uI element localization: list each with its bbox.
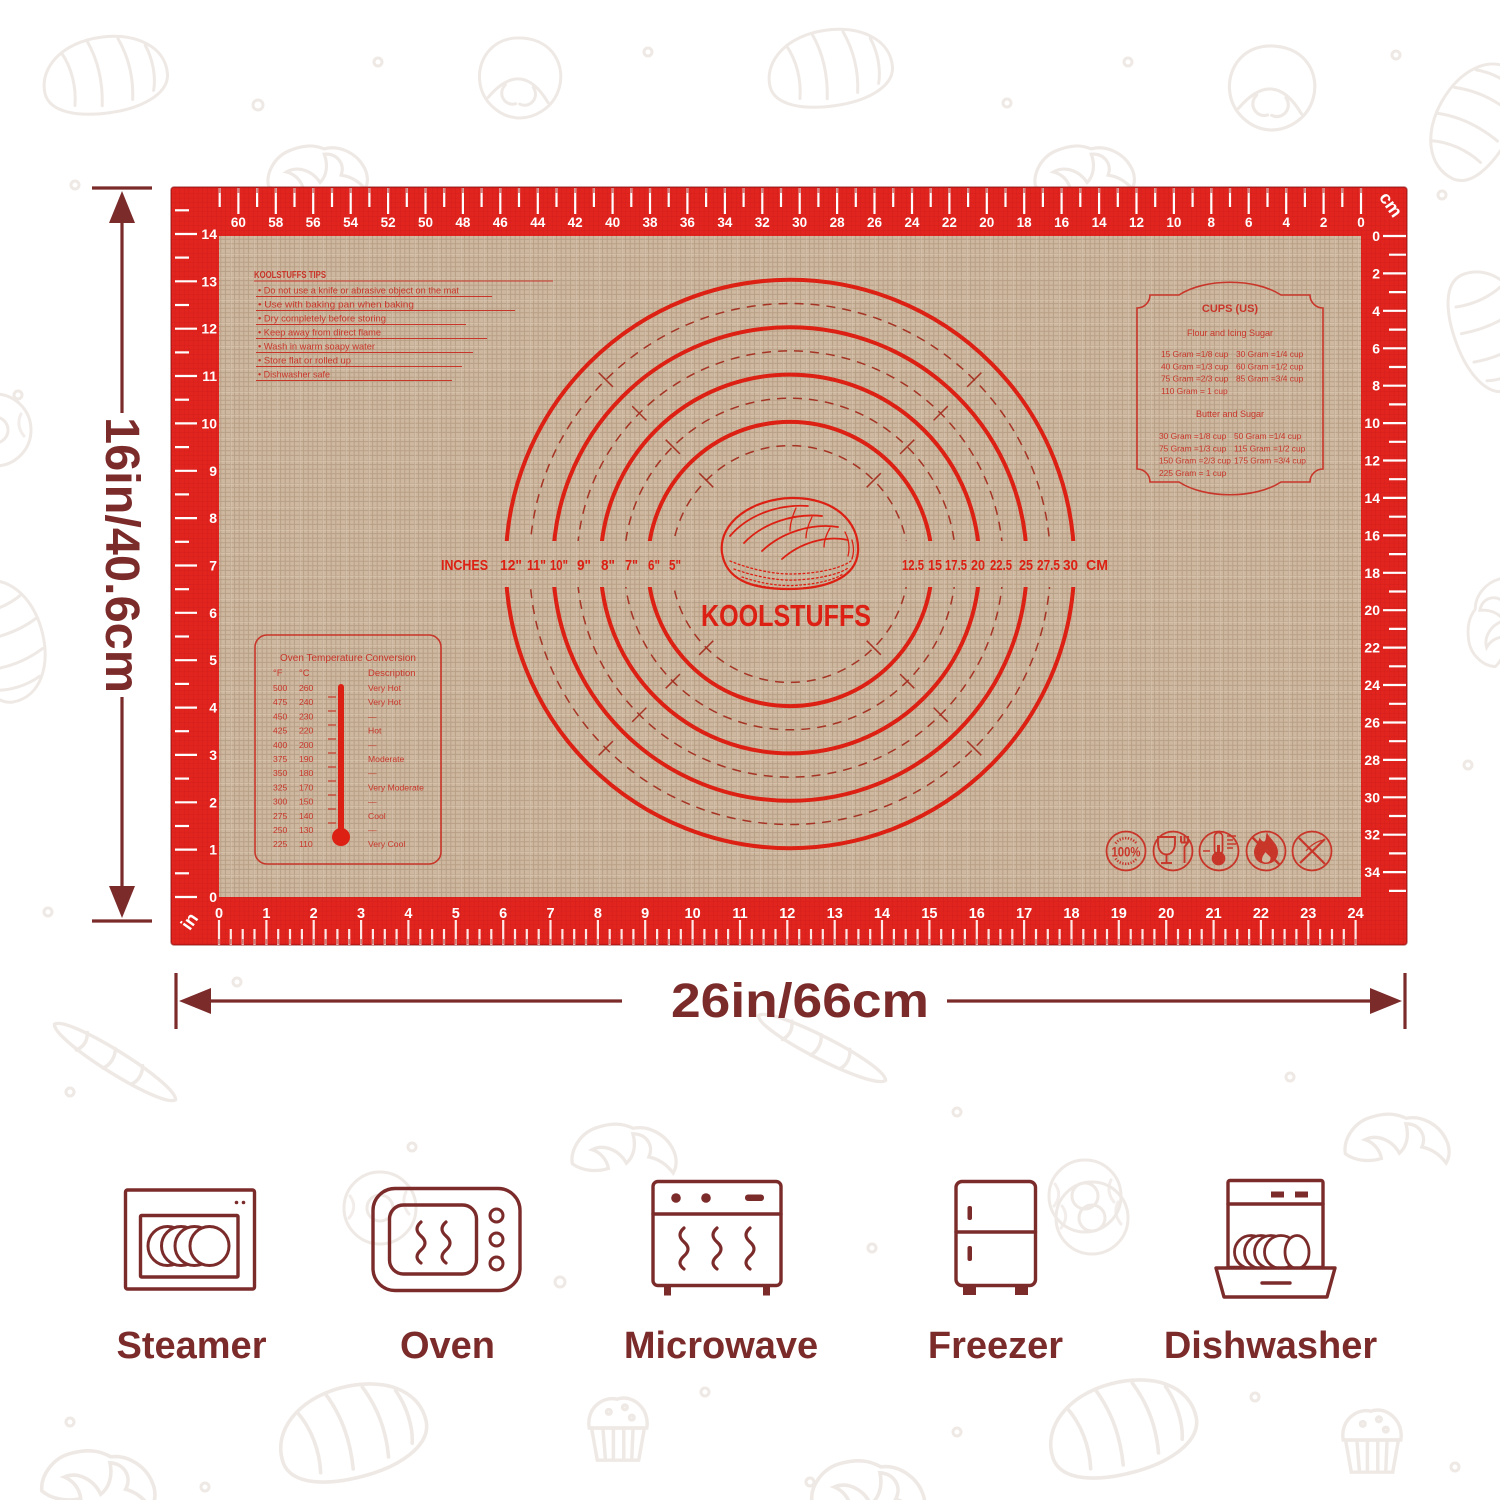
svg-text:Butter and Sugar: Butter and Sugar: [1196, 409, 1264, 419]
svg-text:44: 44: [530, 215, 546, 230]
svg-text:15 Gram =1/8 cup: 15 Gram =1/8 cup: [1161, 349, 1229, 359]
svg-text:6: 6: [1245, 215, 1253, 230]
svg-text:22: 22: [942, 215, 957, 230]
svg-text:30: 30: [1364, 789, 1380, 805]
svg-text:9": 9": [577, 557, 591, 574]
svg-text:12: 12: [1364, 453, 1380, 469]
svg-text:20: 20: [971, 557, 985, 574]
svg-text:26in/66cm: 26in/66cm: [671, 975, 929, 1028]
svg-text:100%: 100%: [1112, 844, 1141, 860]
svg-text:Very Moderate: Very Moderate: [368, 782, 424, 792]
svg-text:INCHES: INCHES: [441, 557, 488, 574]
svg-text:0: 0: [1372, 228, 1380, 244]
svg-text:30 Gram =1/8 cup: 30 Gram =1/8 cup: [1159, 431, 1227, 441]
svg-text:40: 40: [605, 215, 620, 230]
svg-text:10: 10: [1166, 215, 1181, 230]
svg-text:450: 450: [273, 711, 288, 721]
svg-text:10": 10": [550, 557, 568, 574]
svg-text:17: 17: [1016, 906, 1032, 922]
svg-text:0: 0: [209, 889, 217, 905]
svg-text:48: 48: [455, 215, 471, 230]
svg-text:350: 350: [273, 768, 288, 778]
svg-text:6: 6: [209, 605, 217, 621]
svg-text:50 Gram =1/4 cup: 50 Gram =1/4 cup: [1234, 431, 1302, 441]
svg-text:16: 16: [1364, 527, 1380, 543]
svg-text:8: 8: [1372, 378, 1380, 394]
svg-text:36: 36: [680, 215, 696, 230]
svg-text:Oven: Oven: [400, 1325, 495, 1367]
svg-text:22.5: 22.5: [990, 557, 1012, 574]
svg-text:• Dishwasher safe: • Dishwasher safe: [258, 370, 330, 380]
svg-text:Very Cool: Very Cool: [368, 839, 405, 849]
svg-text:6: 6: [1372, 340, 1380, 356]
svg-text:30 Gram =1/4 cup: 30 Gram =1/4 cup: [1236, 349, 1304, 359]
svg-text:26: 26: [1364, 715, 1380, 731]
svg-text:7: 7: [209, 558, 217, 574]
svg-text:1: 1: [262, 906, 270, 922]
svg-text:25: 25: [1019, 557, 1033, 574]
svg-text:34: 34: [717, 215, 733, 230]
svg-text:22: 22: [1364, 640, 1380, 656]
svg-text:9: 9: [209, 463, 217, 479]
svg-text:10: 10: [201, 415, 217, 431]
svg-text:500: 500: [273, 683, 288, 693]
svg-text:24: 24: [1348, 906, 1364, 922]
svg-text:14: 14: [1364, 490, 1380, 506]
svg-text:• Keep away from direct flame: • Keep away from direct flame: [258, 328, 381, 338]
svg-text:225 Gram = 1 cup: 225 Gram = 1 cup: [1159, 468, 1227, 478]
svg-text:18: 18: [1017, 215, 1033, 230]
svg-text:2: 2: [310, 906, 318, 922]
svg-text:13: 13: [201, 273, 217, 289]
svg-text:17.5: 17.5: [945, 557, 967, 574]
svg-text:16: 16: [1054, 215, 1070, 230]
svg-text:220: 220: [299, 726, 314, 736]
svg-text:15: 15: [928, 557, 942, 574]
svg-text:225: 225: [273, 839, 288, 849]
svg-text:150: 150: [299, 797, 314, 807]
svg-text:3: 3: [357, 906, 365, 922]
svg-text:19: 19: [1111, 906, 1127, 922]
svg-text:14: 14: [1092, 215, 1108, 230]
svg-text:5: 5: [209, 652, 217, 668]
svg-text:475: 475: [273, 697, 288, 707]
svg-text:75 Gram =1/3 cup: 75 Gram =1/3 cup: [1159, 443, 1227, 453]
svg-text:5: 5: [452, 906, 460, 922]
svg-text:14: 14: [874, 906, 890, 922]
svg-text:30: 30: [1063, 557, 1078, 574]
svg-text:240: 240: [299, 697, 314, 707]
svg-text:60 Gram =1/2 cup: 60 Gram =1/2 cup: [1236, 361, 1304, 371]
svg-text:3: 3: [209, 747, 217, 763]
svg-text:Dishwasher: Dishwasher: [1164, 1325, 1378, 1367]
svg-text:Steamer: Steamer: [117, 1325, 267, 1367]
svg-text:18: 18: [1063, 906, 1079, 922]
svg-text:325: 325: [273, 782, 288, 792]
svg-text:4: 4: [1372, 303, 1380, 319]
svg-text:7: 7: [546, 906, 554, 922]
svg-text:300: 300: [273, 797, 288, 807]
svg-text:200: 200: [299, 740, 314, 750]
svg-text:130: 130: [299, 825, 314, 835]
svg-text:4: 4: [1282, 215, 1290, 230]
svg-text:2: 2: [209, 794, 217, 810]
svg-text:9: 9: [641, 906, 649, 922]
svg-text:Flour and Icing Sugar: Flour and Icing Sugar: [1187, 328, 1273, 338]
svg-text:10: 10: [685, 906, 701, 922]
svg-text:20: 20: [1364, 602, 1380, 618]
svg-text:50: 50: [418, 215, 433, 230]
svg-text:—: —: [368, 825, 377, 835]
svg-text:8: 8: [594, 906, 602, 922]
svg-text:170: 170: [299, 782, 314, 792]
svg-text:150 Gram =2/3 cup: 150 Gram =2/3 cup: [1159, 456, 1231, 466]
svg-text:11: 11: [732, 906, 747, 922]
svg-text:—: —: [368, 768, 377, 778]
svg-text:• Use with baking pan when bak: • Use with baking pan when baking: [258, 300, 414, 310]
svg-text:230: 230: [299, 711, 314, 721]
svg-text:190: 190: [299, 754, 314, 764]
svg-text:28: 28: [830, 215, 846, 230]
svg-text:110 Gram = 1 cup: 110 Gram = 1 cup: [1161, 386, 1228, 396]
svg-text:6: 6: [499, 906, 507, 922]
svg-text:16in/40.6cm: 16in/40.6cm: [95, 417, 148, 693]
svg-text:58: 58: [268, 215, 284, 230]
svg-text:12: 12: [1129, 215, 1144, 230]
svg-text:24: 24: [904, 215, 920, 230]
svg-text:• Wash in warm soapy water: • Wash in warm soapy water: [258, 342, 375, 352]
svg-text:CUPS (US): CUPS (US): [1202, 303, 1259, 315]
svg-text:6": 6": [648, 557, 660, 574]
svg-text:400: 400: [273, 740, 288, 750]
svg-text:Description: Description: [368, 668, 416, 679]
svg-text:15: 15: [921, 906, 937, 922]
svg-text:16: 16: [969, 906, 985, 922]
svg-text:4: 4: [209, 700, 217, 716]
svg-text:Hot: Hot: [368, 726, 382, 736]
svg-text:18: 18: [1364, 565, 1380, 581]
svg-text:• Store flat or rolled up: • Store flat or rolled up: [258, 356, 351, 366]
svg-text:Microwave: Microwave: [624, 1325, 818, 1367]
svg-text:22: 22: [1253, 906, 1269, 922]
svg-text:260: 260: [299, 683, 314, 693]
svg-text:60: 60: [231, 215, 246, 230]
svg-text:8: 8: [1208, 215, 1216, 230]
svg-text:12": 12": [500, 557, 522, 574]
svg-text:13: 13: [827, 906, 843, 922]
svg-text:32: 32: [1364, 827, 1380, 843]
svg-text:Moderate: Moderate: [368, 754, 405, 764]
svg-text:KOOLSTUFFS TIPS: KOOLSTUFFS TIPS: [254, 270, 326, 281]
svg-text:38: 38: [642, 215, 658, 230]
svg-text:54: 54: [343, 215, 359, 230]
svg-text:12.5: 12.5: [902, 557, 924, 574]
svg-text:34: 34: [1364, 864, 1380, 880]
svg-text:30: 30: [792, 215, 807, 230]
svg-text:KOOLSTUFFS: KOOLSTUFFS: [701, 598, 871, 633]
svg-text:140: 140: [299, 811, 314, 821]
svg-text:26: 26: [867, 215, 883, 230]
svg-text:°F: °F: [273, 668, 283, 679]
svg-text:56: 56: [306, 215, 322, 230]
svg-text:375: 375: [273, 754, 288, 764]
svg-text:11: 11: [202, 368, 217, 384]
svg-text:85 Gram =3/4 cup: 85 Gram =3/4 cup: [1236, 374, 1304, 384]
svg-text:32: 32: [755, 215, 770, 230]
svg-text:14: 14: [201, 226, 217, 242]
svg-text:24: 24: [1364, 677, 1380, 693]
svg-text:21: 21: [1206, 906, 1222, 922]
svg-text:Very Hot: Very Hot: [368, 683, 402, 693]
svg-text:Oven Temperature Conversion: Oven Temperature Conversion: [280, 653, 416, 664]
svg-text:12: 12: [201, 321, 217, 337]
svg-text:• Dry completely before storin: • Dry completely before storing: [258, 314, 386, 324]
svg-text:46: 46: [493, 215, 509, 230]
svg-text:20: 20: [979, 215, 994, 230]
svg-text:27.5: 27.5: [1037, 557, 1060, 574]
svg-text:0: 0: [1357, 215, 1365, 230]
svg-text:20: 20: [1158, 906, 1174, 922]
svg-text:11": 11": [527, 557, 546, 574]
svg-text:40 Gram =1/3 cup: 40 Gram =1/3 cup: [1161, 361, 1229, 371]
svg-text:—: —: [368, 797, 377, 807]
svg-text:10: 10: [1364, 415, 1380, 431]
svg-text:180: 180: [299, 768, 314, 778]
svg-text:Cool: Cool: [368, 811, 386, 821]
svg-text:4: 4: [404, 906, 412, 922]
svg-text:7": 7": [625, 557, 638, 574]
svg-text:0: 0: [215, 906, 223, 922]
svg-text:425: 425: [273, 726, 288, 736]
svg-text:1: 1: [209, 842, 217, 858]
svg-text:110: 110: [299, 839, 313, 849]
svg-text:75 Gram =2/3 cup: 75 Gram =2/3 cup: [1161, 374, 1229, 384]
svg-text:—: —: [368, 711, 377, 721]
svg-text:°C: °C: [299, 668, 310, 679]
svg-text:275: 275: [273, 811, 288, 821]
svg-text:2: 2: [1372, 265, 1380, 281]
svg-text:52: 52: [381, 215, 396, 230]
svg-text:250: 250: [273, 825, 288, 835]
svg-text:—: —: [368, 740, 377, 750]
svg-text:5": 5": [669, 557, 681, 574]
svg-text:8: 8: [209, 510, 217, 526]
svg-text:Very Hot: Very Hot: [368, 697, 402, 707]
svg-text:12: 12: [779, 906, 795, 922]
svg-text:8": 8": [601, 557, 615, 574]
svg-text:23: 23: [1300, 906, 1316, 922]
svg-text:42: 42: [568, 215, 583, 230]
svg-text:175 Gram =3/4 cup: 175 Gram =3/4 cup: [1234, 456, 1306, 466]
svg-text:• Do not use a knife or abrasi: • Do not use a knife or abrasive object …: [258, 286, 459, 296]
svg-text:115 Gram =1/2 cup: 115 Gram =1/2 cup: [1234, 443, 1306, 453]
svg-text:Freezer: Freezer: [928, 1325, 1063, 1367]
svg-text:2: 2: [1320, 215, 1328, 230]
svg-text:CM: CM: [1086, 557, 1108, 574]
svg-text:28: 28: [1364, 752, 1380, 768]
